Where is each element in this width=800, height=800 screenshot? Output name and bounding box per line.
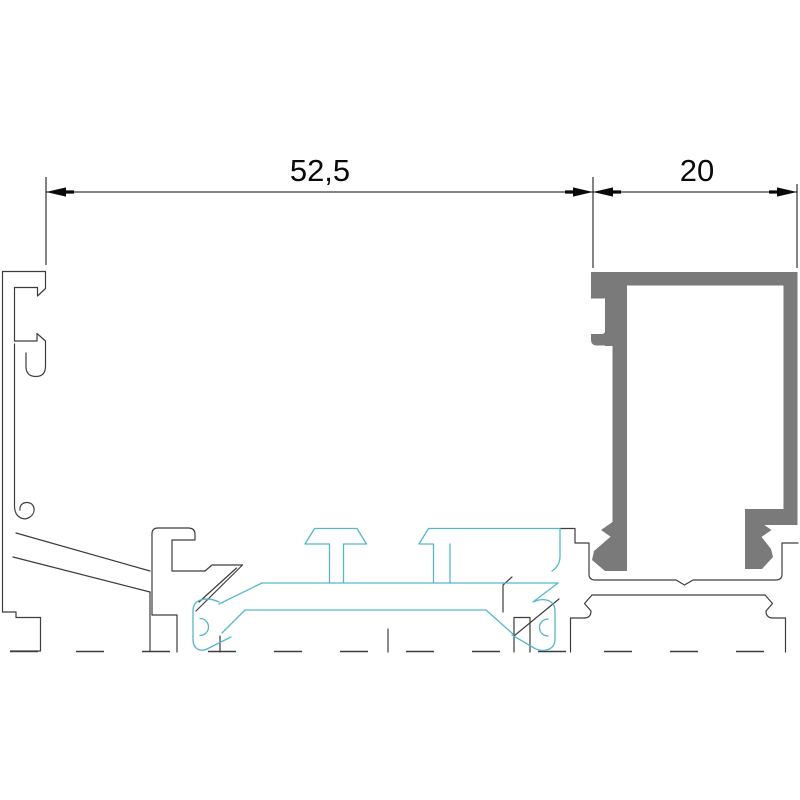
base-ledge-right: [503, 577, 512, 612]
cover-right-wall: [784, 272, 798, 511]
arrowhead-right-icon: [565, 187, 593, 196]
gasket-mushroom-head-1: [305, 529, 367, 584]
dimension-cover-width: 20: [593, 153, 797, 268]
dimension-main-width-label: 52,5: [290, 153, 350, 188]
drawing-canvas: 52,5 20: [0, 0, 800, 800]
left-profile-inner-wall: [15, 344, 35, 519]
gasket-right-foot: [512, 583, 558, 650]
base-hook-blade-left-inner: [199, 568, 237, 602]
cover-left-leg: [613, 286, 628, 546]
gasket-left-ramp: [219, 583, 262, 633]
gasket-mushroom-head-2: [419, 529, 560, 584]
cover-left-leg-barb-large: [592, 535, 627, 571]
left-profile-sloped-web-top: [16, 533, 150, 571]
cover-left-leg-barb-small: [601, 522, 613, 538]
base-step-left: [152, 615, 177, 652]
gasket-left-foot: [193, 599, 231, 650]
arrowhead-right-icon: [769, 187, 797, 196]
arrowhead-left-icon: [46, 187, 74, 196]
technical-drawing: 52,5 20: [0, 0, 800, 800]
base-profile: [10, 528, 798, 652]
wall-profile-left: [3, 272, 151, 652]
left-profile-outer-contour: [3, 272, 46, 613]
left-profile-sloped-web-bottom: [13, 557, 150, 592]
left-profile-foot: [3, 612, 41, 651]
cover-profile-right: [591, 272, 798, 571]
cover-top-bar: [591, 272, 798, 286]
base-lower-channel: [571, 595, 786, 652]
gasket-right-ramp: [486, 610, 513, 634]
dimension-main-width: 52,5: [46, 153, 593, 268]
dimension-cover-width-label: 20: [680, 153, 714, 188]
arrowhead-left-icon: [593, 187, 621, 196]
gasket-profile: [193, 529, 560, 651]
cover-jog: [745, 509, 798, 525]
cover-right-leg-barb-large: [745, 535, 773, 569]
